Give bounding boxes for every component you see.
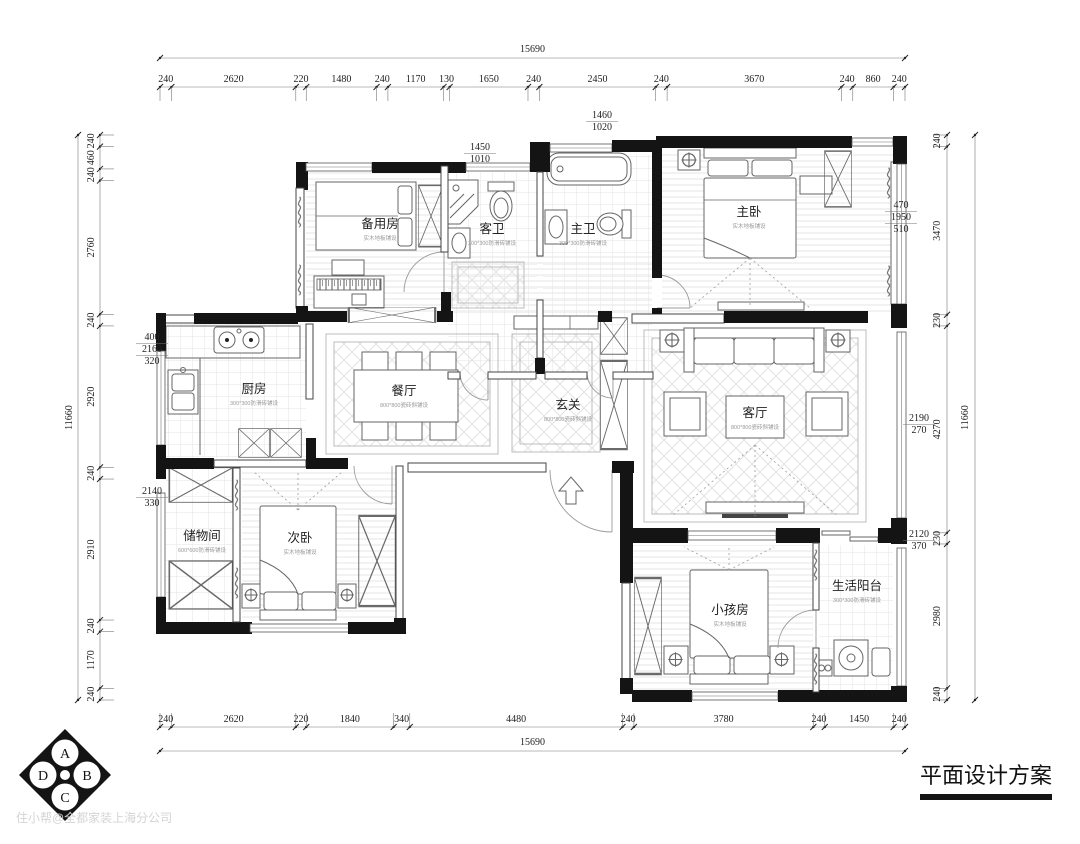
room-label-dining: 餐厅 <box>391 383 416 398</box>
svg-text:320: 320 <box>145 356 160 367</box>
drawing-title: 平面设计方案 <box>920 763 1052 788</box>
floor-foyer <box>512 334 600 452</box>
balcony-slider-leaf1 <box>822 531 850 535</box>
svg-text:1480: 1480 <box>331 74 351 85</box>
room-sub-storage: 600*600防滑砖铺设 <box>178 546 226 554</box>
svg-text:1450: 1450 <box>470 142 490 153</box>
title-underline <box>920 794 1052 800</box>
svg-text:11660: 11660 <box>960 405 971 430</box>
svg-text:220: 220 <box>294 714 309 725</box>
compass-a: A <box>60 747 71 762</box>
room-sub-living: 800*800瓷砖斜铺设 <box>731 423 779 431</box>
compass-b: B <box>82 769 91 784</box>
shoe-cabinet <box>514 316 598 329</box>
floor-storage <box>166 469 233 622</box>
svg-text:3780: 3780 <box>714 714 734 725</box>
svg-text:220: 220 <box>294 74 309 85</box>
svg-text:240: 240 <box>86 313 97 328</box>
svg-text:240: 240 <box>621 714 636 725</box>
water-heater <box>872 648 890 676</box>
room-label-second-bed: 次卧 <box>287 531 312 545</box>
svg-text:2190: 2190 <box>909 413 929 424</box>
room-sub-master-bath: 300*300防滑砖铺设 <box>559 239 607 247</box>
svg-text:2620: 2620 <box>224 74 244 85</box>
svg-text:240: 240 <box>932 687 943 702</box>
guest-bath-toilet <box>488 182 514 221</box>
room-sub-dining: 800*800瓷砖斜铺设 <box>380 401 428 409</box>
svg-text:860: 860 <box>866 74 881 85</box>
svg-text:2160: 2160 <box>142 344 162 355</box>
room-sub-balcony: 300*300防滑砖铺设 <box>833 596 881 604</box>
balcony-slider-leaf2 <box>850 537 878 541</box>
room-label-master-bed: 主卧 <box>736 205 761 219</box>
room-sub-spare: 实木地板铺设 <box>363 234 397 242</box>
svg-text:240: 240 <box>892 714 907 725</box>
svg-text:460: 460 <box>86 150 97 165</box>
master-tv-cabinet <box>718 302 804 310</box>
svg-text:3670: 3670 <box>744 74 764 85</box>
room-sub-foyer: 800*800瓷砖斜铺设 <box>544 415 592 423</box>
svg-text:1650: 1650 <box>479 74 499 85</box>
room-sub-second-bed: 实木地板铺设 <box>283 548 317 556</box>
svg-text:2910: 2910 <box>86 540 97 560</box>
svg-text:2120: 2120 <box>909 529 929 540</box>
svg-text:1020: 1020 <box>592 122 612 133</box>
washing-machine <box>834 640 868 676</box>
svg-text:1840: 1840 <box>340 714 360 725</box>
svg-text:240: 240 <box>812 714 827 725</box>
svg-text:340: 340 <box>394 714 409 725</box>
svg-text:470: 470 <box>894 200 909 211</box>
room-label-spare: 备用房 <box>361 216 399 231</box>
svg-text:240: 240 <box>840 74 855 85</box>
master-bath-sink <box>545 210 567 244</box>
watermark: 住小帮@全都家装上海分公司 <box>16 810 172 825</box>
floor-hall-tile <box>452 262 524 308</box>
kitchen-sink <box>168 368 198 415</box>
room-label-living: 客厅 <box>742 405 767 420</box>
svg-text:240: 240 <box>86 618 97 633</box>
room-sub-master-bed: 实木地板铺设 <box>732 222 766 230</box>
svg-text:15690: 15690 <box>520 737 545 748</box>
svg-text:4270: 4270 <box>932 419 943 439</box>
svg-text:240: 240 <box>654 74 669 85</box>
svg-text:370: 370 <box>912 541 927 552</box>
svg-text:1170: 1170 <box>406 74 426 85</box>
second-bed <box>260 506 336 620</box>
svg-text:330: 330 <box>145 498 160 509</box>
svg-text:2920: 2920 <box>86 387 97 407</box>
room-label-kids: 小孩房 <box>711 602 749 617</box>
svg-text:510: 510 <box>894 224 909 235</box>
svg-text:2760: 2760 <box>86 237 97 257</box>
entry-door <box>550 470 612 532</box>
armchair-left <box>664 392 706 436</box>
entry-arrow-icon <box>559 477 583 504</box>
svg-text:240: 240 <box>86 133 97 148</box>
guest-bath-sink <box>448 228 470 258</box>
room-label-kitchen: 厨房 <box>241 381 266 396</box>
svg-text:240: 240 <box>158 714 173 725</box>
room-label-balcony: 生活阳台 <box>832 578 882 593</box>
svg-text:130: 130 <box>439 74 454 85</box>
room-label-master-bath: 主卫 <box>570 222 595 236</box>
room-label-guest-bath: 客卫 <box>479 221 504 236</box>
svg-text:2980: 2980 <box>932 606 943 626</box>
floor-plan-canvas: 2402620220148024011701301650240245024036… <box>0 0 1080 844</box>
svg-text:1010: 1010 <box>470 154 490 165</box>
svg-text:1170: 1170 <box>86 650 97 670</box>
svg-text:240: 240 <box>86 466 97 481</box>
room-label-storage: 储物间 <box>183 528 221 543</box>
svg-text:2620: 2620 <box>224 714 244 725</box>
svg-text:230: 230 <box>932 531 943 546</box>
room-sub-kitchen: 300*300防滑砖铺设 <box>230 399 278 407</box>
title-block: 平面设计方案 <box>920 763 1052 800</box>
stove <box>214 327 264 353</box>
svg-text:1450: 1450 <box>849 714 869 725</box>
svg-text:3470: 3470 <box>932 221 943 241</box>
piano <box>314 276 384 308</box>
svg-text:1950: 1950 <box>891 212 911 223</box>
svg-text:240: 240 <box>932 133 943 148</box>
svg-text:11660: 11660 <box>64 405 75 430</box>
svg-text:1460: 1460 <box>592 110 612 121</box>
svg-text:240: 240 <box>158 74 173 85</box>
master-dresser <box>800 176 832 194</box>
svg-text:240: 240 <box>526 74 541 85</box>
svg-text:240: 240 <box>86 687 97 702</box>
svg-text:15690: 15690 <box>520 44 545 55</box>
room-sub-guest-bath: 300*300防滑砖铺设 <box>468 239 516 247</box>
svg-text:240: 240 <box>892 74 907 85</box>
svg-text:240: 240 <box>375 74 390 85</box>
svg-text:2450: 2450 <box>588 74 608 85</box>
compass-logo: A B C D <box>19 729 111 821</box>
room-label-foyer: 玄关 <box>555 397 580 412</box>
svg-text:230: 230 <box>932 313 943 328</box>
compass-c: C <box>60 791 69 806</box>
armchair-right <box>806 392 848 436</box>
svg-text:240: 240 <box>86 167 97 182</box>
svg-text:400: 400 <box>145 332 160 343</box>
compass-d: D <box>38 769 48 784</box>
svg-text:2140: 2140 <box>142 486 162 497</box>
room-sub-kids: 实木地板铺设 <box>713 620 747 628</box>
svg-text:4480: 4480 <box>506 714 526 725</box>
rug <box>332 260 364 275</box>
svg-text:270: 270 <box>912 425 927 436</box>
bathtub <box>547 153 631 185</box>
